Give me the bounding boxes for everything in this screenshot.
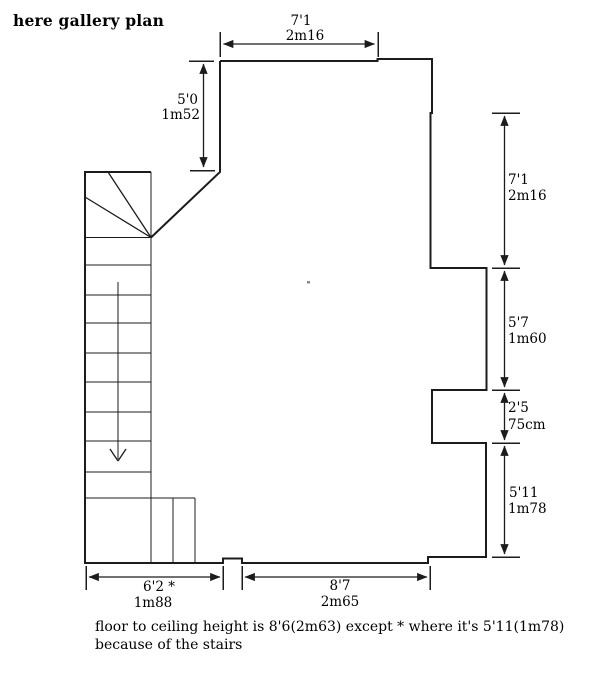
stray-mark	[307, 281, 310, 284]
dimension-right-middle: 5'7 1m60	[492, 271, 547, 390]
stair-direction-arrow	[110, 282, 126, 461]
dimension-label-imperial: 5'7	[508, 315, 529, 331]
dimension-top-width: 7'1 2m16	[220, 13, 378, 57]
footnote: floor to ceiling height is 8'6(2m63) exc…	[95, 619, 564, 653]
dimension-label-metric: 2m65	[321, 594, 360, 610]
dimension-right-notch: 2'5 75cm	[492, 393, 546, 443]
dimension-label-metric: 75cm	[508, 417, 546, 433]
dimension-label-imperial: 7'1	[508, 172, 529, 188]
dimension-bottom-left: 6'2 * 1m88	[86, 566, 223, 611]
dimension-label-imperial: 8'7	[330, 578, 351, 594]
dimension-label-metric: 1m78	[508, 501, 547, 517]
dimension-label-metric: 1m88	[134, 595, 173, 611]
dimension-label-metric: 2m16	[286, 28, 325, 44]
dimension-label-imperial: 2'5	[508, 400, 529, 416]
staircase	[85, 172, 195, 563]
page-title: here gallery plan	[13, 11, 164, 30]
dimension-label-metric: 2m16	[508, 188, 547, 204]
dimension-right-lower: 5'11 1m78	[492, 446, 547, 557]
dimension-label-imperial: 7'1	[291, 13, 312, 29]
dimension-label-metric: 1m52	[161, 107, 200, 123]
wall-outline	[85, 59, 487, 563]
dimension-bottom-right: 8'7 2m65	[242, 566, 430, 610]
stair-winder-line	[108, 172, 151, 238]
dimension-label-imperial: 5'11	[509, 485, 538, 501]
dimension-label-imperial: 6'2 *	[143, 579, 175, 595]
wall-left-and-diagonal	[151, 61, 220, 238]
dimension-right-upper: 7'1 2m16	[492, 113, 547, 268]
floor-plan-canvas: here gallery plan	[0, 0, 600, 693]
gallery-floor-plan-page: here gallery plan	[0, 0, 600, 693]
walls	[85, 59, 487, 563]
footnote-line-2: because of the stairs	[95, 637, 242, 653]
stair-winder-line	[85, 197, 151, 238]
footnote-line-1: floor to ceiling height is 8'6(2m63) exc…	[95, 619, 564, 635]
dimension-entry-height: 5'0 1m52	[161, 61, 215, 171]
dimension-label-imperial: 5'0	[177, 92, 198, 108]
dimension-label-metric: 1m60	[508, 331, 547, 347]
